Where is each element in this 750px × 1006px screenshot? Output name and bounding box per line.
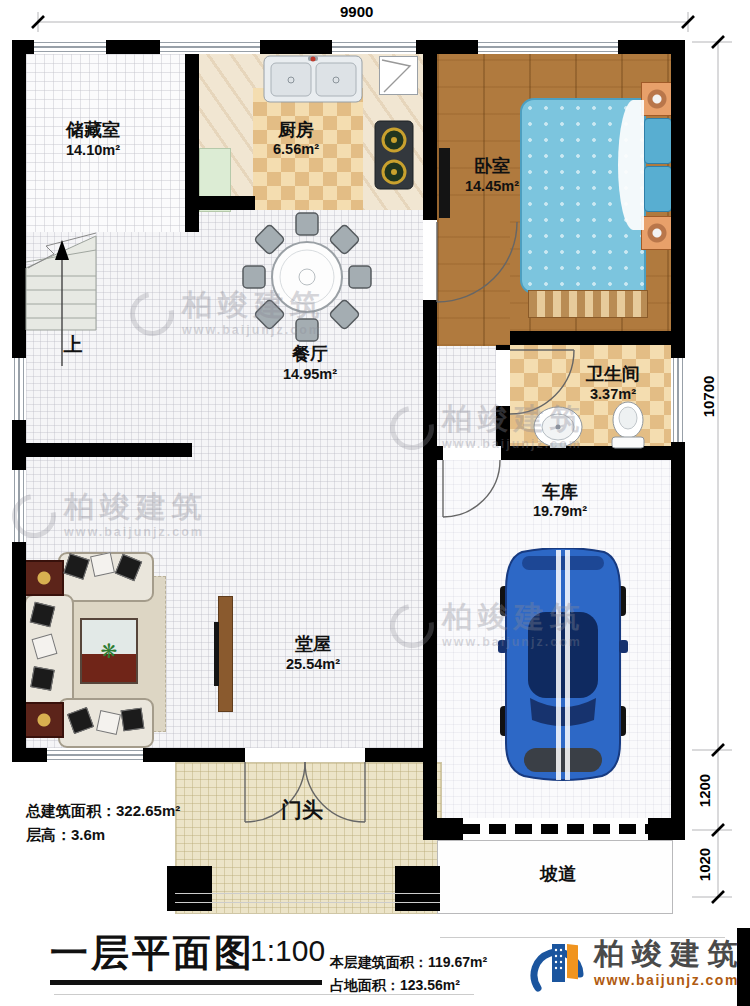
wall-bedroom-garage-left bbox=[423, 54, 437, 748]
room-area-hall: 25.54m² bbox=[286, 656, 340, 672]
note-footprint-area: 占地面积：123.56m² bbox=[330, 977, 460, 995]
room-area-garage: 19.79m² bbox=[533, 503, 587, 519]
room-label-porch: 门头 bbox=[281, 796, 323, 824]
room-area-bathroom: 3.37m² bbox=[590, 386, 636, 402]
room-area-storage: 14.10m² bbox=[66, 142, 120, 158]
entry-cabinet bbox=[379, 56, 418, 95]
stairs-up-label: 上 bbox=[64, 332, 83, 358]
brand-logo-icon bbox=[528, 934, 588, 998]
tv-cabinet bbox=[218, 596, 233, 712]
bedroom-tv-icon bbox=[439, 148, 450, 218]
room-label-bathroom: 卫生间 bbox=[586, 362, 640, 386]
room-label-dining: 餐厅 bbox=[292, 342, 328, 366]
note-floor-height: 层高：3.6m bbox=[26, 826, 105, 845]
bed-blanket bbox=[618, 100, 644, 230]
room-area-bedroom: 14.45m² bbox=[465, 178, 519, 194]
dimension-top: 9900 bbox=[340, 3, 373, 20]
nightstand bbox=[641, 216, 673, 250]
room-label-storage: 储藏室 bbox=[66, 118, 120, 142]
room-area-kitchen: 6.56m² bbox=[273, 141, 319, 157]
wall-storage-kitchen bbox=[185, 54, 199, 232]
sofa-pillow bbox=[90, 552, 115, 577]
coffee-table: ❋ bbox=[80, 618, 138, 684]
brand-name: 柏竣建筑 bbox=[594, 934, 746, 975]
note-floor-area: 本层建筑面积：119.67m² bbox=[330, 954, 487, 972]
porch-step-line bbox=[175, 893, 440, 894]
dimension-right-lower: 1020 bbox=[696, 837, 713, 893]
bedside-rug bbox=[528, 290, 648, 318]
bed-pillow bbox=[644, 118, 672, 164]
window-kitchen bbox=[160, 40, 260, 54]
room-area-dining: 14.95m² bbox=[283, 366, 337, 382]
dimension-right-upper: 10700 bbox=[700, 369, 717, 425]
dimension-right-mid: 1200 bbox=[696, 763, 713, 819]
wall-dining-hall bbox=[12, 443, 192, 457]
window-bathroom bbox=[671, 358, 685, 442]
room-label-hall: 堂屋 bbox=[295, 632, 331, 656]
window-entry bbox=[332, 40, 416, 54]
brand-url: www.baijunjz.com bbox=[594, 972, 739, 988]
plan-scale: 1:100 bbox=[250, 934, 325, 968]
title-underline bbox=[50, 980, 322, 985]
room-label-garage: 车库 bbox=[542, 480, 578, 504]
door-opening-garage bbox=[443, 446, 501, 460]
garage-door-pier-left bbox=[423, 818, 463, 840]
window-hall-south bbox=[47, 748, 143, 762]
note-total-area: 总建筑面积：322.65m² bbox=[26, 802, 180, 821]
door-opening-bathroom bbox=[496, 350, 510, 406]
porch-post-right bbox=[395, 866, 440, 911]
wall-bathroom-top bbox=[510, 331, 671, 345]
window-left-dining bbox=[12, 358, 26, 420]
plant-icon: ❋ bbox=[101, 639, 118, 663]
bed-pillow bbox=[644, 166, 672, 212]
porch-post-left bbox=[167, 866, 212, 911]
sofa-pillow bbox=[30, 666, 54, 690]
nightstand bbox=[641, 82, 673, 116]
sofa-pillow bbox=[121, 708, 145, 732]
window-bedroom bbox=[478, 40, 618, 54]
porch-step-line bbox=[175, 902, 440, 903]
door-opening-bedroom bbox=[423, 220, 437, 300]
car-top-view bbox=[498, 548, 628, 783]
bedroom-entry-floor bbox=[437, 220, 510, 346]
floor-plan-page: ❋ bbox=[0, 0, 750, 1006]
plan-title: 一层平面图 bbox=[50, 928, 255, 979]
door-opening-entrance bbox=[245, 748, 365, 762]
tv-icon bbox=[214, 622, 219, 686]
room-label-ramp: 坡道 bbox=[540, 862, 576, 886]
sofa-pillow bbox=[96, 710, 121, 735]
room-label-kitchen: 厨房 bbox=[278, 118, 314, 142]
garage-door-pier-right bbox=[648, 818, 685, 840]
side-table bbox=[24, 702, 64, 738]
room-label-bedroom: 卧室 bbox=[474, 154, 510, 178]
wall-kitchen-stub bbox=[199, 196, 255, 210]
side-table bbox=[24, 560, 64, 596]
window-storage bbox=[34, 40, 106, 54]
window-left-hall bbox=[12, 470, 26, 542]
